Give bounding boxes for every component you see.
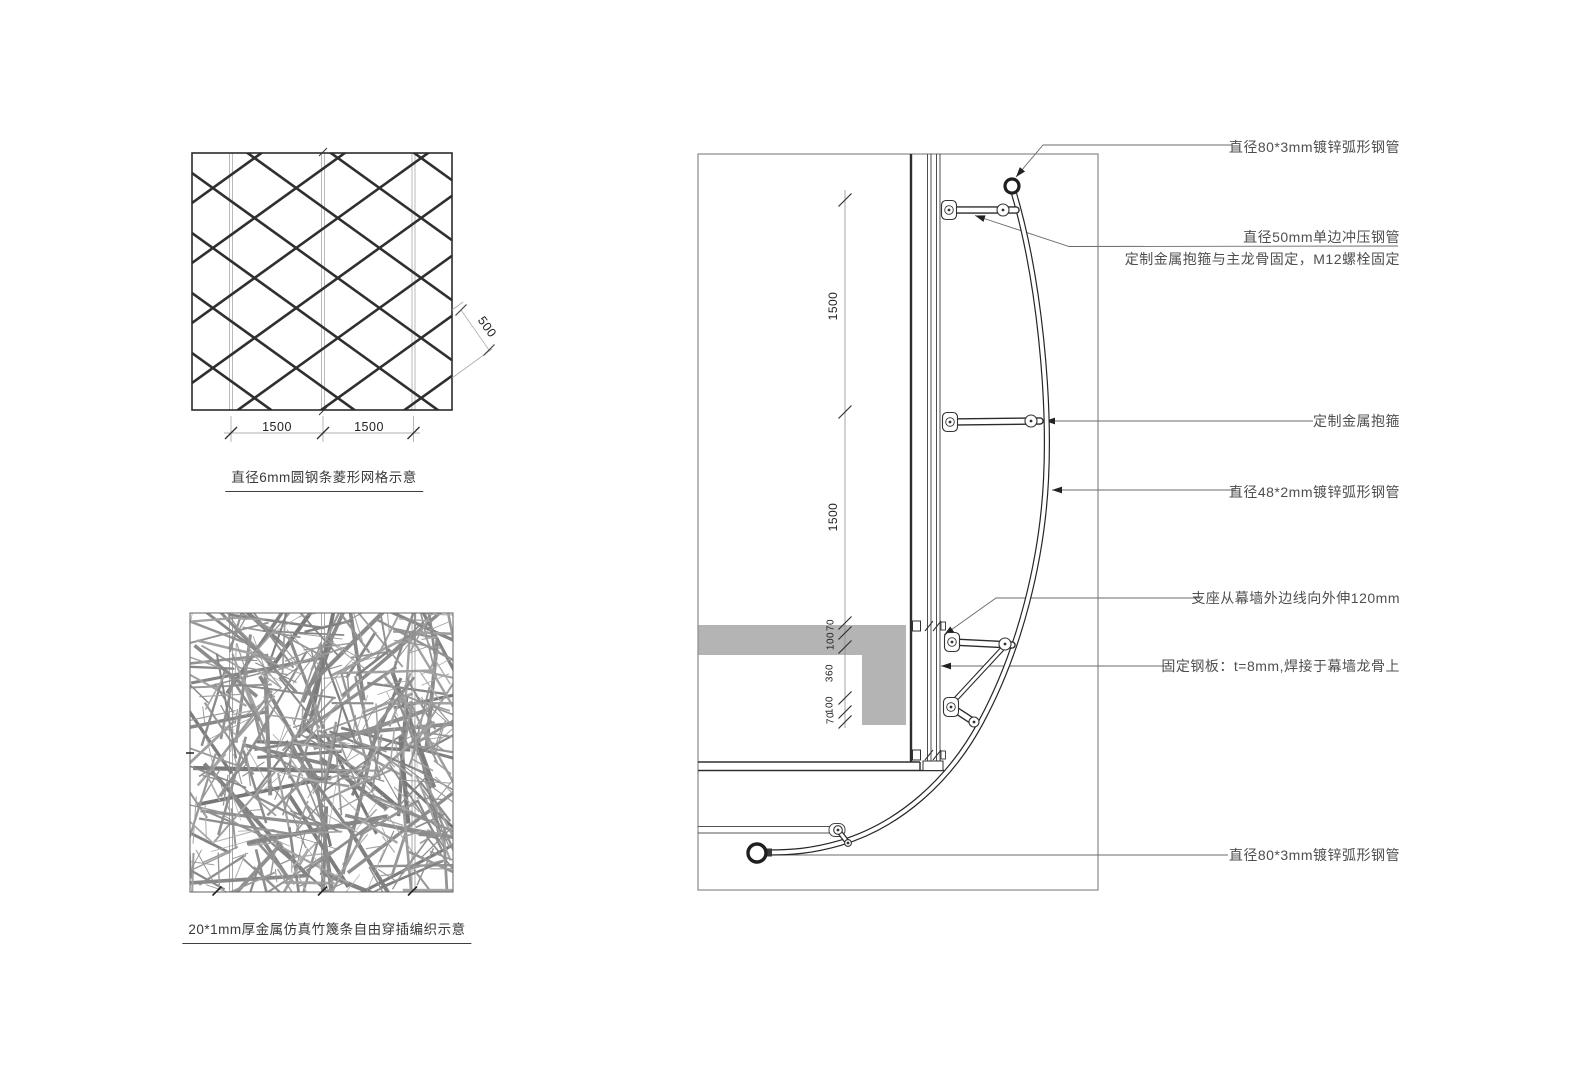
callout-strut-pipe: 直径50mm单边冲压钢管 bbox=[1243, 227, 1400, 247]
callout-bottom-pipe: 直径80*3mm镀锌弧形钢管 bbox=[1229, 845, 1400, 865]
callout-top-pipe: 直径80*3mm镀锌弧形钢管 bbox=[1229, 137, 1400, 157]
detail-dim-70-a: 70 bbox=[826, 619, 837, 631]
grid-dim-1500-right: 1500 bbox=[354, 420, 384, 434]
detail-dim-100-a: 100 bbox=[826, 632, 837, 650]
drawing-sheet: 1500 1500 500 直径6mm圆钢条菱形网格示意 20*1mm厚金属仿真… bbox=[0, 0, 1587, 1080]
detail-dim-360: 360 bbox=[825, 664, 836, 682]
grid-dim-1500-left: 1500 bbox=[262, 420, 292, 434]
detail-dim-1500-upper: 1500 bbox=[826, 292, 840, 321]
callout-clamp: 定制金属抱箍 bbox=[1313, 411, 1400, 431]
callout-plate: 固定钢板：t=8mm,焊接于幕墙龙骨上 bbox=[1161, 656, 1400, 676]
callout-arc-pipe: 直径48*2mm镀锌弧形钢管 bbox=[1229, 482, 1400, 502]
detail-dim-1500-lower: 1500 bbox=[826, 503, 840, 532]
weave-panel-caption: 20*1mm厚金属仿真竹篾条自由穿插编织示意 bbox=[182, 918, 471, 944]
grid-panel-caption: 直径6mm圆钢条菱形网格示意 bbox=[225, 466, 423, 492]
callout-strut-pipe-note: 定制金属抱箍与主龙骨固定，M12螺栓固定 bbox=[1125, 249, 1400, 269]
detail-dim-70-b: 70 bbox=[826, 712, 837, 724]
callout-support: 支座从幕墙外边线向外伸120mm bbox=[1191, 588, 1400, 608]
